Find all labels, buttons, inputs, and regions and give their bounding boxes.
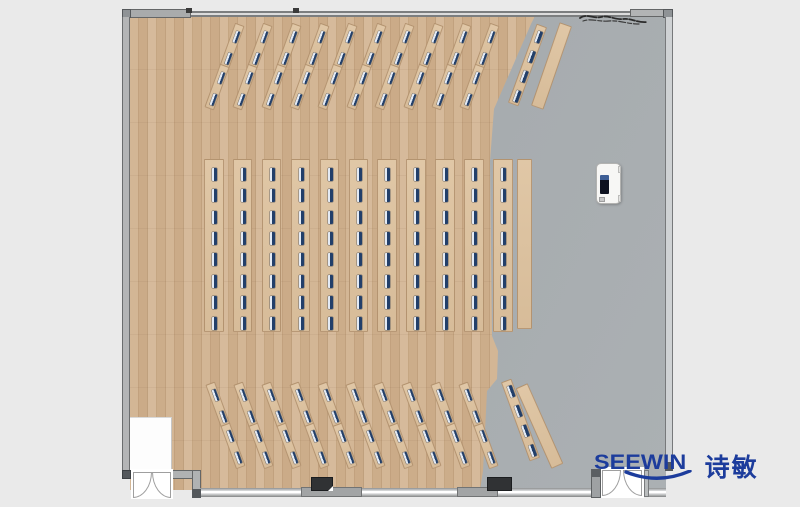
chair-mark — [328, 232, 333, 245]
chair-mark — [414, 211, 419, 224]
chair-mark — [282, 429, 290, 442]
chair-mark — [252, 51, 260, 64]
top-desk-strip — [446, 22, 471, 68]
chair-mark — [444, 71, 452, 84]
top-desk-strip — [346, 63, 371, 109]
chair-mark — [501, 189, 506, 202]
chair-mark — [212, 211, 217, 224]
chair-mark — [472, 296, 477, 309]
chair-mark — [328, 211, 333, 224]
structural-column — [311, 477, 333, 491]
chair-mark — [295, 388, 303, 401]
top-desk-strip — [204, 63, 229, 109]
top-desk-strip — [248, 22, 273, 68]
podium-tab — [618, 166, 621, 173]
chair-mark — [407, 388, 415, 401]
chair-mark — [385, 232, 390, 245]
chair-mark — [472, 275, 477, 288]
middle-desk-column — [435, 159, 455, 332]
chair-mark — [330, 71, 338, 84]
top-desk-strip — [219, 22, 244, 68]
chair-mark — [479, 429, 487, 442]
chair-mark — [357, 232, 362, 245]
chair-mark — [501, 211, 506, 224]
bottom-desk-strip — [289, 381, 314, 427]
brand-logo: SEEWIN 诗敏 — [594, 448, 794, 488]
chair-mark — [464, 388, 472, 401]
window-band — [200, 488, 302, 497]
bottom-desk-strip — [333, 422, 358, 468]
chair-mark — [501, 275, 506, 288]
chair-mark — [245, 71, 253, 84]
top-desk-strip — [460, 63, 485, 109]
top-desk-strip — [375, 63, 400, 109]
bottom-desk-strip — [389, 422, 414, 468]
chair-mark — [309, 51, 317, 64]
podium-foot — [599, 197, 605, 202]
chair-mark — [472, 211, 477, 224]
chair-mark — [414, 168, 419, 181]
chair-mark — [451, 51, 459, 64]
chair-mark — [270, 232, 275, 245]
top-desk-strip — [233, 63, 258, 109]
bottom-desk-strip — [402, 381, 427, 427]
chair-mark — [212, 296, 217, 309]
chair-mark — [346, 450, 354, 463]
chair-mark — [224, 51, 232, 64]
chair-mark — [450, 429, 458, 442]
chair-mark — [212, 317, 217, 330]
chair-mark — [527, 50, 535, 63]
chair-mark — [394, 429, 402, 442]
chair-mark — [226, 429, 234, 442]
bottom-desk-strip — [346, 381, 371, 427]
chair-mark — [414, 275, 419, 288]
chair-mark — [289, 30, 297, 43]
chair-mark — [414, 189, 419, 202]
chair-mark — [274, 71, 282, 84]
chair-mark — [443, 232, 448, 245]
chair-mark — [443, 253, 448, 266]
chair-mark — [414, 232, 419, 245]
brand-chinese-name: 诗敏 — [705, 448, 759, 484]
chair-mark — [302, 71, 310, 84]
chair-mark — [385, 275, 390, 288]
chair-mark — [270, 275, 275, 288]
chair-mark — [414, 317, 419, 330]
chair-mark — [513, 89, 521, 102]
chair-mark — [239, 388, 247, 401]
chair-mark — [217, 71, 225, 84]
chair-mark — [237, 92, 245, 105]
chair-mark — [318, 450, 326, 463]
counter-desk — [517, 159, 532, 329]
chair-mark — [443, 168, 448, 181]
wall-top-left-segment — [122, 9, 191, 18]
chair-mark — [472, 232, 477, 245]
bottom-desk-strip — [248, 422, 273, 468]
chair-mark — [472, 71, 480, 84]
chair-mark — [266, 92, 274, 105]
chair-mark — [387, 71, 395, 84]
chair-mark — [328, 168, 333, 181]
top-desk-strip — [475, 22, 500, 68]
chair-mark — [436, 92, 444, 105]
window-band — [649, 488, 666, 497]
chair-mark — [357, 253, 362, 266]
bottom-desk-strip — [261, 381, 286, 427]
chair-mark — [357, 211, 362, 224]
middle-desk-column — [464, 159, 484, 332]
chair-mark — [443, 275, 448, 288]
chair-mark — [385, 317, 390, 330]
chair-mark — [328, 253, 333, 266]
chair-mark — [472, 317, 477, 330]
chair-mark — [443, 189, 448, 202]
chair-mark — [385, 211, 390, 224]
chair-mark — [520, 70, 528, 83]
chair-mark — [351, 388, 359, 401]
wall-corner-cap — [192, 489, 201, 498]
chair-mark — [241, 296, 246, 309]
chair-mark — [359, 71, 367, 84]
chair-mark — [212, 189, 217, 202]
middle-desk-column — [204, 159, 224, 332]
wall-right — [665, 17, 673, 463]
chair-mark — [241, 317, 246, 330]
chair-mark — [275, 409, 283, 422]
chair-mark — [323, 388, 331, 401]
chair-mark — [387, 409, 395, 422]
furniture-layer — [0, 0, 800, 507]
chair-mark — [443, 409, 451, 422]
chair-mark — [521, 424, 529, 437]
chair-mark — [254, 429, 262, 442]
chair-mark — [212, 275, 217, 288]
chair-mark — [486, 450, 494, 463]
bottom-desk-strip — [276, 422, 301, 468]
chair-mark — [317, 30, 325, 43]
chair-mark — [247, 409, 255, 422]
brand-swoosh-icon — [624, 470, 692, 483]
wall-mark — [293, 8, 299, 13]
chair-mark — [211, 388, 219, 401]
middle-desk-column — [320, 159, 340, 332]
chair-mark — [328, 296, 333, 309]
bottom-desk-strip — [430, 381, 455, 427]
middle-desk-column — [291, 159, 311, 332]
chair-mark — [267, 388, 275, 401]
bottom-desk-strip — [304, 422, 329, 468]
chair-mark — [487, 30, 495, 43]
chair-mark — [430, 450, 438, 463]
chair-mark — [299, 211, 304, 224]
top-desk-strip — [304, 22, 329, 68]
chair-mark — [212, 232, 217, 245]
top-desk-strip — [418, 22, 443, 68]
podium — [596, 163, 621, 204]
chair-mark — [472, 189, 477, 202]
chair-mark — [459, 30, 467, 43]
chair-mark — [270, 317, 275, 330]
chair-mark — [422, 429, 430, 442]
chair-mark — [357, 189, 362, 202]
chair-mark — [299, 189, 304, 202]
chair-mark — [357, 317, 362, 330]
chair-mark — [366, 51, 374, 64]
chair-mark — [241, 211, 246, 224]
floor-plan: SEEWIN 诗敏 — [0, 0, 800, 507]
chair-mark — [402, 30, 410, 43]
chair-mark — [394, 51, 402, 64]
chair-mark — [328, 275, 333, 288]
chair-mark — [299, 296, 304, 309]
top-desk-strip — [431, 63, 456, 109]
chair-mark — [241, 253, 246, 266]
middle-desk-column — [493, 159, 513, 332]
chair-mark — [480, 51, 488, 64]
scribble-mark — [577, 10, 657, 28]
middle-desk-column — [377, 159, 397, 332]
chair-mark — [514, 404, 522, 417]
chair-mark — [359, 409, 367, 422]
chair-mark — [270, 253, 275, 266]
chair-mark — [415, 409, 423, 422]
chair-mark — [374, 450, 382, 463]
chair-mark — [416, 71, 424, 84]
chair-mark — [338, 51, 346, 64]
chair-mark — [328, 317, 333, 330]
chair-mark — [294, 92, 302, 105]
structural-column — [487, 477, 512, 491]
middle-desk-column — [349, 159, 369, 332]
top-desk-strip — [361, 22, 386, 68]
chair-mark — [528, 444, 536, 457]
chair-mark — [501, 317, 506, 330]
chair-mark — [472, 253, 477, 266]
chair-mark — [299, 317, 304, 330]
window-band — [361, 488, 458, 497]
chair-mark — [299, 168, 304, 181]
chair-mark — [431, 30, 439, 43]
chair-mark — [435, 388, 443, 401]
chair-mark — [379, 92, 387, 105]
top-desk-strip — [261, 63, 286, 109]
chair-mark — [331, 409, 339, 422]
wall-corner-cap — [122, 470, 131, 479]
chair-mark — [351, 92, 359, 105]
wall-mark — [186, 8, 192, 13]
chair-mark — [328, 189, 333, 202]
chair-mark — [366, 429, 374, 442]
middle-desk-column — [233, 159, 253, 332]
bottom-desk-strip — [417, 422, 442, 468]
chair-mark — [303, 409, 311, 422]
podium-screen — [600, 175, 609, 194]
bottom-desk-strip — [361, 422, 386, 468]
chair-mark — [262, 450, 270, 463]
top-desk-strip — [318, 63, 343, 109]
chair-mark — [212, 168, 217, 181]
bottom-desk-strip — [445, 422, 470, 468]
chair-mark — [209, 92, 217, 105]
chair-mark — [270, 296, 275, 309]
chair-mark — [385, 253, 390, 266]
wall-left — [122, 17, 130, 471]
chair-mark — [323, 92, 331, 105]
top-desk-strip — [333, 22, 358, 68]
chair-mark — [402, 450, 410, 463]
chair-mark — [385, 296, 390, 309]
chair-mark — [472, 168, 477, 181]
chair-mark — [219, 409, 227, 422]
chair-mark — [357, 275, 362, 288]
bottom-desk-strip — [374, 381, 399, 427]
chair-mark — [299, 275, 304, 288]
top-desk-strip — [276, 22, 301, 68]
chair-mark — [471, 409, 479, 422]
chair-mark — [414, 296, 419, 309]
chair-mark — [379, 388, 387, 401]
chair-mark — [260, 30, 268, 43]
podium-tab — [618, 195, 621, 202]
chair-mark — [385, 189, 390, 202]
chair-mark — [465, 92, 473, 105]
chair-mark — [501, 168, 506, 181]
chair-mark — [357, 296, 362, 309]
chair-mark — [501, 253, 506, 266]
chair-mark — [241, 275, 246, 288]
chair-mark — [385, 168, 390, 181]
chair-mark — [443, 296, 448, 309]
bottom-desk-strip — [205, 381, 230, 427]
chair-mark — [414, 253, 419, 266]
chair-mark — [290, 450, 298, 463]
chair-mark — [234, 450, 242, 463]
chair-mark — [501, 232, 506, 245]
chair-mark — [241, 168, 246, 181]
chair-mark — [299, 253, 304, 266]
chair-mark — [506, 385, 514, 398]
chair-mark — [270, 168, 275, 181]
chair-mark — [408, 92, 416, 105]
chair-mark — [345, 30, 353, 43]
chair-mark — [232, 30, 240, 43]
chair-mark — [281, 51, 289, 64]
top-desk-strip — [403, 63, 428, 109]
chair-mark — [310, 429, 318, 442]
chair-mark — [501, 296, 506, 309]
chair-mark — [241, 189, 246, 202]
chair-mark — [241, 232, 246, 245]
chair-mark — [458, 450, 466, 463]
wall-top-main-segment — [191, 11, 630, 17]
chair-mark — [443, 317, 448, 330]
chair-mark — [299, 232, 304, 245]
chair-mark — [423, 51, 431, 64]
bottom-desk-strip — [458, 381, 483, 427]
chair-mark — [374, 30, 382, 43]
bottom-desk-strip — [318, 381, 343, 427]
middle-desk-column — [262, 159, 282, 332]
top-desk-strip — [289, 63, 314, 109]
chair-mark — [443, 211, 448, 224]
chair-mark — [338, 429, 346, 442]
chair-mark — [212, 253, 217, 266]
bottom-desk-strip — [220, 422, 245, 468]
top-desk-strip — [390, 22, 415, 68]
chair-mark — [270, 211, 275, 224]
chair-mark — [270, 189, 275, 202]
bottom-desk-strip — [473, 422, 498, 468]
chair-mark — [357, 168, 362, 181]
middle-desk-column — [406, 159, 426, 332]
bottom-desk-strip — [233, 381, 258, 427]
chair-mark — [534, 30, 542, 43]
